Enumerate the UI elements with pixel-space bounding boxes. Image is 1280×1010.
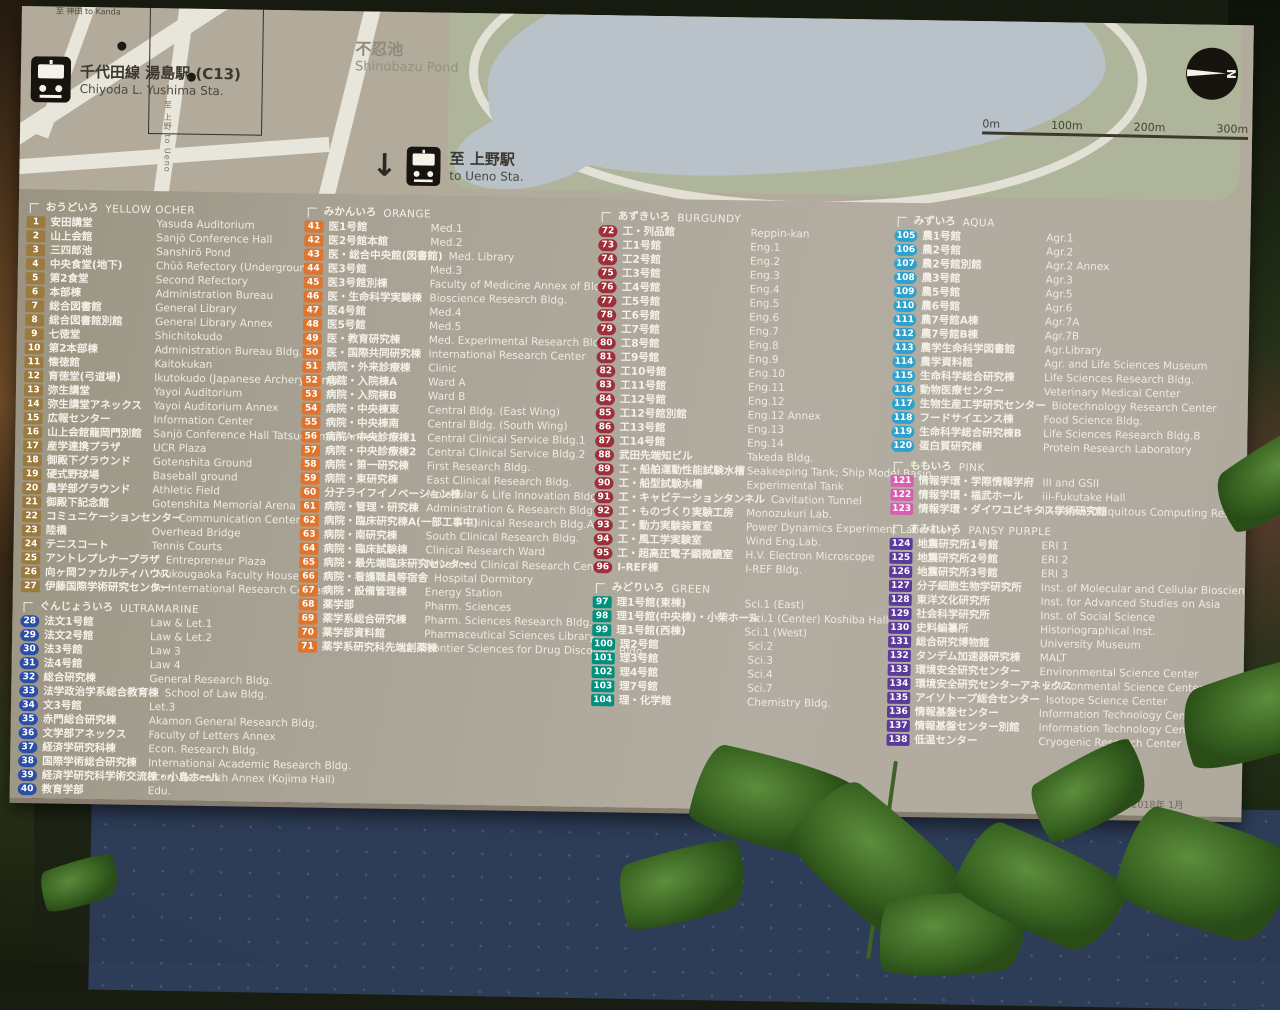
item-name-jp: 三四郎池 xyxy=(50,243,150,259)
item-number-chip: 82 xyxy=(596,365,615,377)
item-name-en: Ward A xyxy=(428,375,466,390)
pond-name-jp: 不忍池 xyxy=(355,39,459,61)
item-number-chip: 101 xyxy=(592,652,615,664)
item-name-en: Overhead Bridge xyxy=(152,525,241,540)
section-color-name-jp: みどりいろ xyxy=(612,579,665,595)
item-number-chip: 95 xyxy=(593,547,612,559)
item-name-jp: 医1号館 xyxy=(328,220,424,236)
item-number-chip: 21 xyxy=(22,496,41,508)
item-number-chip: 105 xyxy=(894,230,917,242)
item-number-chip: 125 xyxy=(889,552,912,564)
yushima-station-label: 千代田線 湯島駅 (C13) Chiyoda L. Yushima Sta. xyxy=(30,56,241,105)
item-name-jp: 陸橋 xyxy=(46,523,146,539)
compass-letter: N xyxy=(1224,69,1238,79)
item-number-chip: 46 xyxy=(303,290,322,302)
item-number-chip: 14 xyxy=(24,398,43,410)
item-number-chip: 17 xyxy=(23,440,42,452)
legend-section-ultramarine: ぐんじょういろULTRAMARINE28法文1号館Law & Let.129法文… xyxy=(18,595,299,800)
corner-bracket-icon xyxy=(596,583,605,593)
section-color-name-en: PINK xyxy=(959,462,985,474)
item-number-chip: 102 xyxy=(592,666,615,678)
section-color-name-jp: すみれいろ xyxy=(909,521,962,537)
item-number-chip: 74 xyxy=(598,253,617,265)
corner-bracket-icon xyxy=(308,208,317,218)
item-name-jp: 硬式野球場 xyxy=(47,467,147,483)
section-color-name-en: ULTRAMARINE xyxy=(120,603,199,616)
item-name-en: Sci.7 xyxy=(747,681,773,695)
item-number-chip: 97 xyxy=(593,596,612,608)
item-number-chip: 24 xyxy=(21,538,40,550)
item-number-chip: 31 xyxy=(20,657,39,669)
item-number-chip: 128 xyxy=(889,594,912,606)
item-name-en: ERI 1 xyxy=(1041,539,1068,553)
item-name-en: Agr.2 Annex xyxy=(1046,259,1110,274)
ueno-jp: 至 上野駅 xyxy=(449,150,524,170)
item-name-en: Med.4 xyxy=(429,305,461,320)
item-number-chip: 111 xyxy=(893,314,916,326)
area-map: 至 神田 to Kanda 至 上野 to Ueno 千代田線 湯島駅 (C13… xyxy=(19,6,1254,208)
item-name-en: Med.1 xyxy=(430,221,462,236)
item-number-chip: 5 xyxy=(26,272,45,284)
item-name-en: Gotenshita Ground xyxy=(153,455,253,471)
item-name-en: Econ. Research Annex (Kojima Hall) xyxy=(148,770,335,787)
item-number-chip: 18 xyxy=(23,454,42,466)
item-name-en: Sci.1 (West) xyxy=(744,625,807,640)
item-name-jp: 安田講堂 xyxy=(50,215,150,231)
item-number-chip: 42 xyxy=(304,234,323,246)
item-name-jp: I-REF棟 xyxy=(617,560,739,576)
section-color-name-jp: ももいろ xyxy=(910,458,952,474)
item-number-chip: 130 xyxy=(888,622,911,634)
item-number-chip: 4 xyxy=(26,258,45,270)
item-number-chip: 72 xyxy=(598,225,617,237)
item-number-chip: 115 xyxy=(892,370,915,382)
item-name-en: Tennis Courts xyxy=(151,539,222,554)
item-name-en: Hospital Dormitory xyxy=(434,572,533,588)
item-name-en: Sanshirō Pond xyxy=(156,245,231,260)
item-number-chip: 110 xyxy=(893,300,916,312)
item-name-en: Eng.9 xyxy=(748,352,778,366)
item-name-jp: 病院・外来診療棟 xyxy=(326,360,422,376)
item-number-chip: 67 xyxy=(299,584,318,596)
item-name-en: Agr.Library xyxy=(1044,343,1101,358)
item-name-en: ERI 3 xyxy=(1041,567,1068,581)
item-number-chip: 100 xyxy=(592,638,615,650)
item-name-jp: 医2号館本館 xyxy=(328,234,424,250)
item-name-jp: 山上会館 xyxy=(50,229,150,245)
item-number-chip: 131 xyxy=(888,636,911,648)
item-name-en: Eng.6 xyxy=(749,310,779,324)
item-number-chip: 134 xyxy=(887,678,910,690)
item-number-chip: 76 xyxy=(598,281,617,293)
item-name-jp: 病院・第一研究棟 xyxy=(325,458,421,474)
item-number-chip: 87 xyxy=(595,435,614,447)
item-name-jp: 医4号館 xyxy=(327,304,423,320)
item-number-chip: 11 xyxy=(24,356,43,368)
item-name-en: Med.5 xyxy=(429,319,461,334)
legend-column-1: おうどいろYELLOW OCHER1安田講堂Yasuda Auditorium2… xyxy=(18,194,305,800)
item-name-jp: 総合研究棟 xyxy=(43,670,143,686)
item-number-chip: 58 xyxy=(301,458,320,470)
item-name-jp: 病院・中央棟東 xyxy=(326,402,422,418)
item-number-chip: 92 xyxy=(594,505,613,517)
item-name-en: Med. Library xyxy=(449,250,515,265)
building-legend: おうどいろYELLOW OCHER1安田講堂Yasuda Auditorium2… xyxy=(10,189,1251,817)
item-name-jp: 弥生講堂 xyxy=(48,383,148,399)
item-number-chip: 136 xyxy=(887,706,910,718)
item-name-jp: 理・化学館 xyxy=(619,693,741,709)
station-name-jp: 千代田線 湯島駅 (C13) xyxy=(80,63,241,84)
item-number-chip: 93 xyxy=(594,519,613,531)
item-name-en: Experimental Tank xyxy=(746,478,843,494)
item-number-chip: 9 xyxy=(25,328,44,340)
item-number-chip: 104 xyxy=(591,694,614,706)
item-number-chip: 122 xyxy=(890,489,913,501)
item-number-chip: 22 xyxy=(22,510,41,522)
item-number-chip: 109 xyxy=(894,286,917,298)
item-number-chip: 63 xyxy=(300,528,319,540)
item-number-chip: 123 xyxy=(890,503,913,515)
item-number-chip: 91 xyxy=(594,491,613,503)
station-name-en: Chiyoda L. Yushima Sta. xyxy=(80,82,241,99)
compass-north-icon: N xyxy=(1185,46,1240,101)
item-name-en: Agr.6 xyxy=(1045,301,1072,315)
item-number-chip: 13 xyxy=(24,384,43,396)
item-name-en: Agr.7B xyxy=(1045,329,1080,344)
item-number-chip: 78 xyxy=(597,309,616,321)
item-name-en: Sci.2 xyxy=(748,639,774,653)
item-name-en: I-REF Bldg. xyxy=(745,562,802,577)
item-number-chip: 71 xyxy=(298,640,317,652)
item-name-en: Eng.10 xyxy=(748,366,785,381)
item-number-chip: 36 xyxy=(18,727,37,739)
item-name-jp: 教育学部 xyxy=(42,782,142,798)
scale-100m: 100m xyxy=(1051,119,1083,133)
item-number-chip: 54 xyxy=(302,402,321,414)
item-number-chip: 69 xyxy=(298,612,317,624)
campus-map-sign: 至 神田 to Kanda 至 上野 to Ueno 千代田線 湯島駅 (C13… xyxy=(10,6,1254,817)
item-number-chip: 40 xyxy=(18,783,37,795)
item-name-jp: 育徳堂(弓道場) xyxy=(48,369,148,385)
item-number-chip: 108 xyxy=(894,272,917,284)
item-name-en: Cavitation Tunnel xyxy=(771,493,862,508)
corner-bracket-icon xyxy=(23,602,32,612)
item-number-chip: 16 xyxy=(23,426,42,438)
pond-name-en: Shinobazu Pond xyxy=(355,59,459,76)
item-name-en: Chemistry Bldg. xyxy=(747,695,831,710)
item-name-en: Eng.13 xyxy=(747,422,784,437)
item-number-chip: 60 xyxy=(300,486,319,498)
item-name-en: Agr.7A xyxy=(1045,315,1080,330)
item-number-chip: 70 xyxy=(298,626,317,638)
item-name-jp: 薬学系総合研究棟 xyxy=(322,612,418,628)
item-number-chip: 23 xyxy=(22,524,41,536)
item-name-en: Information Center xyxy=(153,413,253,429)
item-name-en: Wind Eng.Lab. xyxy=(746,534,822,549)
item-number-chip: 126 xyxy=(889,566,912,578)
road-vertical-label: 至 上野 to Ueno xyxy=(161,100,173,173)
item-number-chip: 124 xyxy=(890,538,913,550)
item-name-jp: 赤門総合研究棟 xyxy=(43,712,143,728)
item-name-en: Agr.2 xyxy=(1046,245,1073,259)
legend-column-3: あずきいろBURGUNDY72工・列品館Reppin-kan73工1号館Eng.… xyxy=(591,203,895,712)
item-number-chip: 107 xyxy=(894,258,917,270)
item-name-en: Eng.11 xyxy=(748,380,785,395)
item-number-chip: 137 xyxy=(887,720,910,732)
section-color-name-en: BURGUNDY xyxy=(677,212,741,225)
item-name-jp: 弥生講堂アネックス xyxy=(48,397,148,413)
item-number-chip: 56 xyxy=(301,430,320,442)
item-name-en: Eng.7 xyxy=(749,324,779,338)
item-name-jp: 薬学系研究科先端創薬棟 xyxy=(322,640,418,656)
item-name-en: Gotenshita Memorial Arena xyxy=(152,497,296,513)
item-number-chip: 99 xyxy=(592,624,611,636)
scale-200m: 200m xyxy=(1134,121,1166,135)
item-name-en: Kaitokukan xyxy=(154,357,212,372)
item-number-chip: 32 xyxy=(19,671,38,683)
item-name-jp: 中央食堂(地下) xyxy=(50,257,150,273)
item-number-chip: 47 xyxy=(303,304,322,316)
item-name-jp: 情報学環・ダイワユビキタス学術研究館 xyxy=(918,502,1036,518)
legend-section-green: みどりいろGREEN97理1号館(東棟)Sci.1 (East)98理1号館(中… xyxy=(591,576,889,712)
item-name-en: Eng.2 xyxy=(750,254,780,268)
item-name-en: Energy Station xyxy=(425,585,503,600)
item-number-chip: 113 xyxy=(893,342,916,354)
section-color-name-jp: みかんいろ xyxy=(324,204,377,220)
item-name-en: UCR Plaza xyxy=(153,441,206,456)
item-number-chip: 138 xyxy=(886,734,909,746)
item-number-chip: 12 xyxy=(24,370,43,382)
item-number-chip: 79 xyxy=(597,323,616,335)
item-name-en: Med.2 xyxy=(430,235,462,250)
scale-0m: 0m xyxy=(982,117,1000,130)
item-number-chip: 1 xyxy=(27,216,46,228)
item-name-jp: 国際学術総合研究棟 xyxy=(42,754,142,770)
item-name-jp: 御殿下グラウンド xyxy=(47,453,147,469)
item-number-chip: 65 xyxy=(299,556,318,568)
section-color-name-en: GREEN xyxy=(671,583,710,596)
item-number-chip: 112 xyxy=(893,328,916,340)
item-number-chip: 68 xyxy=(299,598,318,610)
item-number-chip: 8 xyxy=(25,314,44,326)
item-name-jp: 法文2号館 xyxy=(44,628,144,644)
corner-bracket-icon xyxy=(602,212,611,222)
item-name-jp: 病院・臨床試験棟 xyxy=(323,542,419,558)
item-name-en: Protein Research Laboratory xyxy=(1043,441,1192,457)
item-name-en: Eng.3 xyxy=(750,268,780,282)
item-name-jp: 文学部アネックス xyxy=(42,726,142,742)
corner-bracket-icon xyxy=(893,525,902,535)
to-kanda-label: 至 神田 to Kanda xyxy=(56,6,121,18)
item-name-jp: 病院・中央診療棟2 xyxy=(325,444,421,460)
item-name-jp: 病院・東研究棟 xyxy=(325,472,421,488)
item-name-en: III and GSII xyxy=(1042,476,1099,491)
legend-section-orange: みかんいろORANGE41医1号館Med.142医2号館本館Med.243医・総… xyxy=(298,200,599,658)
item-name-jp: 病院・管理・研究棟 xyxy=(324,500,420,516)
item-number-chip: 2 xyxy=(26,230,45,242)
corner-bracket-icon xyxy=(898,217,907,227)
item-name-en: Baseball ground xyxy=(153,469,238,484)
item-name-jp: 病院・中央棟南 xyxy=(325,416,421,432)
item-name-jp: 医3号館別棟 xyxy=(328,276,424,292)
section-color-name-jp: ぐんじょういろ xyxy=(39,598,113,614)
item-number-chip: 75 xyxy=(598,267,617,279)
item-number-chip: 64 xyxy=(299,542,318,554)
legend-item-27: 27伊藤国際学術研究センターIto International Research… xyxy=(21,579,299,597)
item-number-chip: 81 xyxy=(596,351,615,363)
item-name-en: Agr.1 xyxy=(1046,231,1073,245)
item-number-chip: 94 xyxy=(594,533,613,545)
item-name-jp: 本部棟 xyxy=(49,285,149,301)
item-number-chip: 59 xyxy=(301,472,320,484)
ueno-en: to Ueno Sta. xyxy=(449,169,523,185)
item-number-chip: 7 xyxy=(25,300,44,312)
item-name-en: Eng.12 xyxy=(748,394,785,409)
item-number-chip: 66 xyxy=(299,570,318,582)
item-number-chip: 85 xyxy=(596,407,615,419)
item-number-chip: 135 xyxy=(887,692,910,704)
item-name-jp: 医3号館 xyxy=(328,262,424,278)
corner-bracket-icon xyxy=(30,203,39,213)
item-name-en: Sci.4 xyxy=(747,667,773,681)
item-number-chip: 88 xyxy=(595,449,614,461)
item-name-en: Ward B xyxy=(428,389,466,404)
item-name-jp: 第2食堂 xyxy=(50,271,150,287)
item-number-chip: 132 xyxy=(888,650,911,662)
item-name-jp: 病院・最先端臨床研究センター xyxy=(323,556,419,572)
item-name-en: Eng.12 Annex xyxy=(748,408,821,423)
item-name-en: Monozukuri Lab. xyxy=(746,506,832,521)
legend-section-burgundy: あずきいろBURGUNDY72工・列品館Reppin-kan73工1号館Eng.… xyxy=(593,205,895,579)
item-name-en: Eng.1 xyxy=(750,240,780,254)
item-number-chip: 118 xyxy=(892,412,915,424)
item-name-jp: 低温センター xyxy=(914,733,1032,749)
item-name-en: Takeda Bldg. xyxy=(747,450,814,465)
item-name-en: Clinic xyxy=(428,361,457,375)
item-name-jp: 第2本部棟 xyxy=(49,341,149,357)
item-number-chip: 119 xyxy=(891,426,914,438)
item-name-en: Eng.14 xyxy=(747,436,784,451)
item-name-jp: 御殿下記念館 xyxy=(46,495,146,511)
item-name-jp: 分子ライフイノベーション棟 xyxy=(324,486,420,502)
item-name-jp: 総合図書館 xyxy=(49,299,149,315)
train-icon xyxy=(406,146,441,187)
item-name-jp: 蛋白質研究棟 xyxy=(919,439,1037,455)
item-number-chip: 114 xyxy=(892,356,915,368)
item-number-chip: 80 xyxy=(597,337,616,349)
item-name-jp: 産学連携プラザ xyxy=(47,439,147,455)
item-number-chip: 77 xyxy=(597,295,616,307)
section-color-name-jp: みずいろ xyxy=(914,213,956,229)
item-name-en: Yasuda Auditorium xyxy=(156,217,254,233)
item-name-jp: 医・教育研究棟 xyxy=(327,332,423,348)
item-number-chip: 41 xyxy=(304,220,323,232)
item-name-en: Edu. xyxy=(148,784,172,798)
item-name-en: Agr.5 xyxy=(1045,287,1072,301)
item-name-en: Yayoi Auditorium xyxy=(154,385,243,400)
item-name-en: iii-Fukutake Hall xyxy=(1042,490,1126,505)
item-name-jp: 総合図書館別館 xyxy=(49,313,149,329)
item-name-jp: 病院・入院棟A xyxy=(326,374,422,390)
item-number-chip: 120 xyxy=(891,440,914,452)
item-number-chip: 90 xyxy=(594,477,613,489)
item-name-en: Law & Let.1 xyxy=(150,616,212,631)
item-name-en: Med.3 xyxy=(430,263,462,278)
item-number-chip: 43 xyxy=(304,248,323,260)
legend-column-4: みずいろAQUA105農1号館Agr.1106農2号館Agr.2107農2号館別… xyxy=(886,208,1246,752)
item-number-chip: 26 xyxy=(21,566,40,578)
pond-label: 不忍池 Shinobazu Pond xyxy=(355,39,459,76)
item-number-chip: 86 xyxy=(595,421,614,433)
corner-bracket-icon xyxy=(894,462,903,472)
item-number-chip: 49 xyxy=(303,332,322,344)
item-name-jp: 薬学部 xyxy=(323,598,419,614)
item-number-chip: 127 xyxy=(889,580,912,592)
item-name-jp: 伊藤国際学術研究センター xyxy=(45,579,145,595)
item-number-chip: 62 xyxy=(300,514,319,526)
down-arrow-icon: ↓ xyxy=(371,150,397,181)
item-number-chip: 133 xyxy=(888,664,911,676)
item-number-chip: 57 xyxy=(301,444,320,456)
item-name-jp: 農学部グラウンド xyxy=(46,481,146,497)
item-number-chip: 116 xyxy=(892,384,915,396)
item-number-chip: 117 xyxy=(892,398,915,410)
item-name-jp: 広報センター xyxy=(47,411,147,427)
legend-section-pink: ももいろPINK121情報学環・学際情報学府III and GSII122情報学… xyxy=(890,455,1243,522)
item-number-chip: 50 xyxy=(302,346,321,358)
item-number-chip: 27 xyxy=(21,580,40,592)
item-name-en: Athletic Field xyxy=(152,483,220,498)
item-name-en: Law 4 xyxy=(150,658,181,672)
station-dot xyxy=(117,42,126,51)
item-name-jp: 病院・入院棟B xyxy=(326,388,422,404)
item-number-chip: 34 xyxy=(19,699,38,711)
section-color-name-jp: あずきいろ xyxy=(618,208,671,224)
item-number-chip: 25 xyxy=(21,552,40,564)
item-number-chip: 44 xyxy=(304,262,323,274)
item-name-jp: 七徳堂 xyxy=(49,327,149,343)
item-name-jp: 医・生命科学実験棟 xyxy=(327,290,423,306)
item-name-en: Sci.3 xyxy=(747,653,773,667)
item-number-chip: 28 xyxy=(20,615,39,627)
item-number-chip: 30 xyxy=(20,643,39,655)
item-name-en: Food Science Bldg. xyxy=(1043,413,1143,429)
item-name-en: Agr.3 xyxy=(1046,273,1073,287)
item-name-jp: 医・国際共同研究棟 xyxy=(326,346,422,362)
section-color-name-en: YELLOW OCHER xyxy=(105,203,195,216)
item-number-chip: 52 xyxy=(302,374,321,386)
item-name-jp: 懐徳館 xyxy=(48,355,148,371)
item-number-chip: 53 xyxy=(302,388,321,400)
item-number-chip: 51 xyxy=(302,360,321,372)
item-name-en: Eng.5 xyxy=(749,296,779,310)
section-color-name-en: ORANGE xyxy=(383,208,431,221)
item-number-chip: 15 xyxy=(23,412,42,424)
item-number-chip: 61 xyxy=(300,500,319,512)
legend-section-yellow-ocher: おうどいろYELLOW OCHER1安田講堂Yasuda Auditorium2… xyxy=(21,196,305,597)
item-name-en: Shichitokudo xyxy=(155,329,223,344)
item-name-en: Pharm. Sciences xyxy=(425,599,512,614)
item-name-jp: 文3号館 xyxy=(43,698,143,714)
item-name-en: Second Refectory xyxy=(156,273,248,288)
item-name-en: Eng.4 xyxy=(750,282,780,296)
item-name-en: Law & Let.2 xyxy=(150,630,212,645)
section-color-name-en: PANSY PURPLE xyxy=(968,525,1051,538)
item-number-chip: 98 xyxy=(592,610,611,622)
item-name-en: Eng.8 xyxy=(749,338,779,352)
item-name-en: School of Law Bldg. xyxy=(165,686,268,702)
item-number-chip: 39 xyxy=(18,769,37,781)
